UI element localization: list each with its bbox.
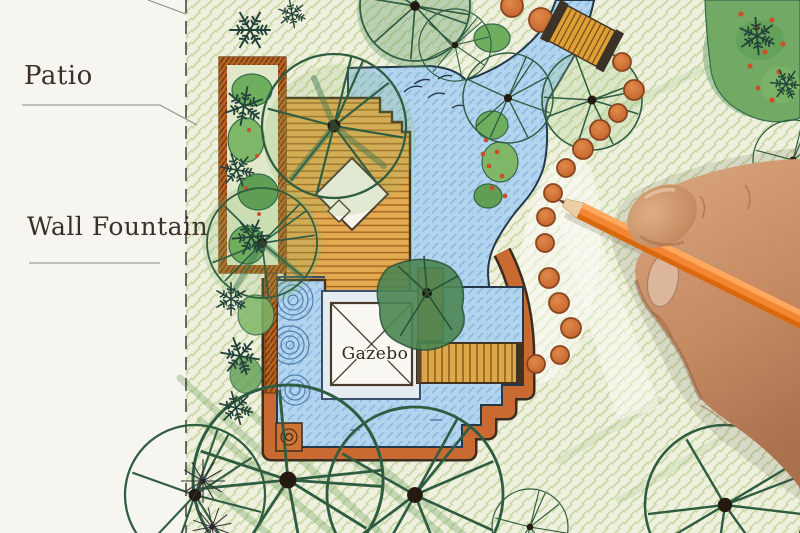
gazebo-label: Gazebo xyxy=(342,344,409,364)
wall-fountain-label: Wall Fountain xyxy=(27,212,208,241)
patio-label: Patio xyxy=(24,61,93,91)
garden-plan-photo: Patio Wall Fountain Gazebo xyxy=(0,0,800,533)
plan-drawing: Patio Wall Fountain Gazebo xyxy=(0,0,800,533)
dark-canopy-tree xyxy=(377,256,464,350)
fountain-feature xyxy=(276,423,302,451)
